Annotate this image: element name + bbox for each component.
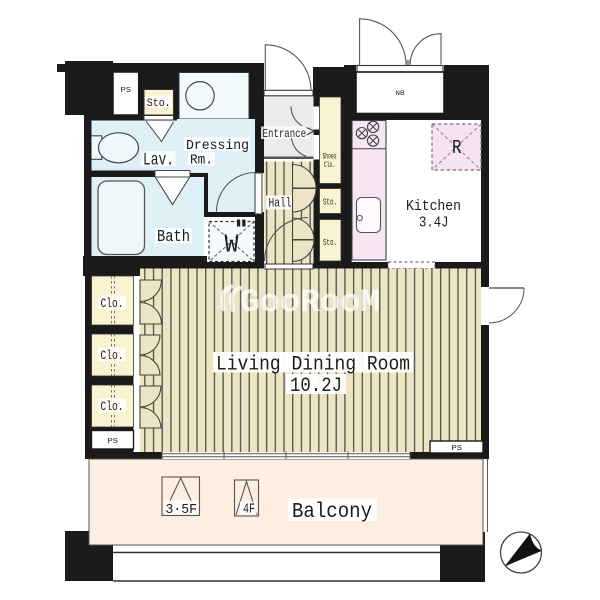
svg-text:Lav.: Lav.: [143, 151, 174, 171]
svg-text:PS: PS: [452, 445, 463, 453]
svg-text:Clo.: Clo.: [101, 297, 124, 311]
svg-text:R: R: [452, 137, 462, 159]
svg-text:4F: 4F: [243, 503, 255, 518]
svg-text:10.2J: 10.2J: [290, 375, 342, 398]
svg-text:GooRooM: GooRooM: [240, 284, 380, 321]
svg-text:Sto.: Sto.: [323, 198, 337, 208]
svg-text:NB: NB: [396, 90, 405, 97]
svg-text:Sto.: Sto.: [323, 238, 337, 248]
svg-text:Balcony: Balcony: [292, 501, 372, 524]
svg-text:3.4J: 3.4J: [419, 215, 449, 232]
svg-text:PS: PS: [121, 87, 132, 95]
svg-text:3·5F: 3·5F: [166, 503, 198, 518]
svg-text:Rm.: Rm.: [190, 153, 213, 169]
svg-text:Clo.: Clo.: [101, 400, 124, 414]
svg-text:Entrance: Entrance: [263, 127, 307, 141]
svg-text:Bath: Bath: [157, 228, 190, 247]
svg-text:W: W: [225, 230, 239, 260]
svg-text:Living Dining Room: Living Dining Room: [216, 354, 410, 377]
svg-text:PS: PS: [108, 438, 119, 446]
svg-text:Hall: Hall: [269, 196, 292, 211]
svg-text:Clo.: Clo.: [101, 349, 124, 363]
svg-text:Sto.: Sto.: [147, 98, 171, 110]
svg-text:Clo.: Clo.: [324, 160, 336, 170]
svg-text:Kitchen: Kitchen: [406, 198, 461, 215]
